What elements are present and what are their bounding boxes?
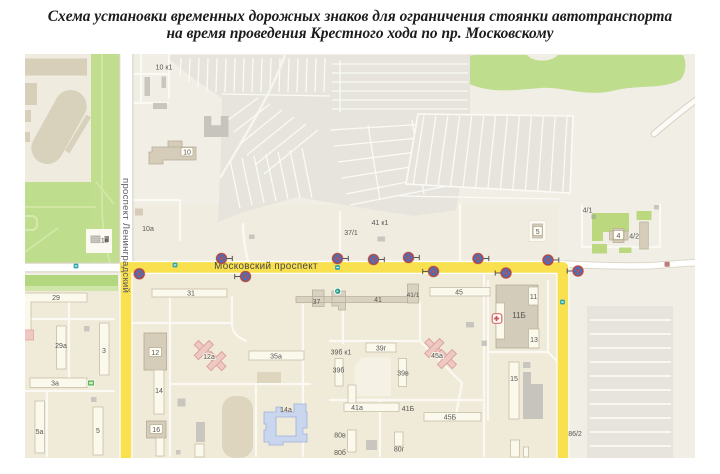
svg-text:39б: 39б [333,367,345,375]
svg-text:5: 5 [536,229,540,236]
svg-text:проспект Ленинградский: проспект Ленинградский [120,178,131,293]
svg-text:45: 45 [455,290,463,297]
svg-text:80б: 80б [334,449,346,457]
svg-text:3: 3 [102,348,106,355]
svg-text:Московский проспект: Московский проспект [214,261,318,272]
svg-text:86/2: 86/2 [568,431,582,438]
svg-text:11: 11 [530,294,537,301]
svg-text:80в: 80в [334,433,346,440]
svg-text:39б к1: 39б к1 [331,349,352,357]
svg-text:4/1: 4/1 [583,208,593,215]
svg-text:16: 16 [152,427,160,434]
svg-text:39в: 39в [397,371,409,378]
svg-text:37: 37 [313,299,321,306]
svg-text:11Б: 11Б [512,311,526,320]
svg-text:12: 12 [151,350,159,357]
svg-text:10 к1: 10 к1 [156,65,173,72]
svg-text:45Б: 45Б [444,415,457,422]
svg-text:14а: 14а [280,407,292,414]
svg-text:15: 15 [510,376,518,383]
svg-text:41/1: 41/1 [407,292,420,299]
svg-text:14: 14 [155,388,163,395]
svg-text:37/1: 37/1 [344,230,358,237]
svg-text:4: 4 [617,233,621,240]
svg-text:10а: 10а [142,226,154,233]
svg-text:31: 31 [187,291,195,298]
svg-text:41 к1: 41 к1 [372,220,389,227]
svg-text:41а: 41а [351,405,363,412]
svg-text:29: 29 [52,295,60,302]
svg-text:41: 41 [374,297,382,304]
svg-text:4/2: 4/2 [629,234,639,241]
svg-text:5: 5 [96,428,100,435]
svg-text:39г: 39г [376,346,387,353]
svg-text:1в: 1в [101,238,109,245]
svg-text:80г: 80г [394,447,405,454]
svg-text:5а: 5а [36,429,44,436]
svg-text:35а: 35а [270,354,282,361]
svg-text:10: 10 [183,150,191,157]
svg-text:12а: 12а [203,354,215,361]
svg-text:45а: 45а [431,353,443,360]
svg-text:41Б: 41Б [402,406,415,413]
svg-text:29а: 29а [55,343,67,350]
svg-text:13: 13 [530,337,538,344]
svg-text:3а: 3а [51,381,59,388]
